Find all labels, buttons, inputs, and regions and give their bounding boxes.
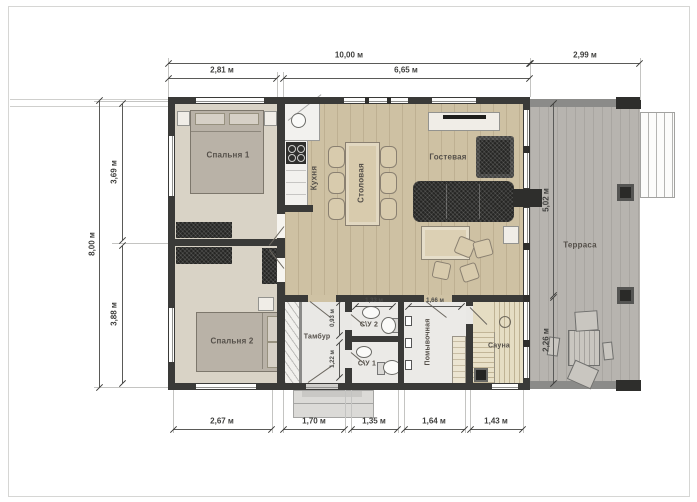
dim-line-top-terrace [530, 63, 640, 64]
dim-top-terrace: 2,99 м [573, 51, 597, 60]
room-label-sauna: Сауна [488, 343, 510, 350]
room-label-terrace: Терраса [563, 241, 597, 250]
stove [286, 142, 306, 164]
site-line [10, 99, 168, 100]
room-label-living: Гостевая [429, 153, 466, 162]
floor-closet [285, 302, 299, 383]
window-bedroom1 [196, 98, 264, 103]
pillow [195, 113, 225, 125]
dim-line-top-bedroom [168, 78, 277, 79]
dim-line-bottom-1 [173, 429, 272, 430]
terrace-steps [640, 112, 675, 198]
nightstand [177, 111, 190, 126]
room-label-wc2: С\У 2 [360, 322, 378, 329]
door-vestibule [308, 295, 336, 302]
dim-terrace-height: 5,02 м [542, 188, 551, 212]
kitchen-end-wall [283, 205, 313, 212]
dim-line-top-total [168, 63, 530, 64]
room-label-wc1: С\У 1 [358, 361, 376, 368]
dim-top-bedroom: 2,81 м [210, 66, 234, 75]
room-label-vestibule: Тамбур [304, 334, 331, 341]
shower-fitting [405, 338, 412, 348]
sauna-stove [474, 368, 488, 382]
burner [297, 154, 305, 162]
dim-line-left-total [99, 101, 100, 387]
window-living [432, 98, 476, 103]
dining-chair [328, 146, 345, 168]
dim-line-bottom-5 [470, 429, 523, 430]
terrace-chair [574, 310, 598, 332]
wall-bedroom-divider [168, 239, 285, 246]
armchair [476, 136, 514, 178]
entry-door [306, 384, 338, 389]
room-label-bedroom1: Спальня 1 [206, 151, 249, 160]
dim-bottom-2: 1,70 м [302, 417, 326, 426]
sink [356, 346, 372, 358]
burner [288, 145, 296, 153]
dim-left-top: 3,69 м [110, 160, 119, 184]
nightstand [258, 297, 274, 311]
room-label-washroom: Помывочная [425, 319, 432, 366]
window-sauna [492, 384, 518, 389]
burner [288, 154, 296, 162]
dim-bottom-5: 1,43 м [484, 417, 508, 426]
dim-wc2-depth: 0,93 м [330, 309, 336, 327]
dining-chair [380, 198, 397, 220]
dining-chair [328, 172, 345, 194]
wall-closet-thin [299, 302, 302, 383]
window-bedroom2-left [169, 308, 174, 362]
kitchen-sink [291, 113, 306, 128]
burner [297, 145, 305, 153]
wardrobe [176, 247, 232, 264]
dim-line-terrace-lower [553, 298, 554, 383]
dim-line-wc2-depth [339, 303, 340, 335]
dining-chair [328, 198, 345, 220]
terrace-bench [602, 342, 614, 361]
washroom-bench [452, 336, 466, 385]
terrace-post [617, 287, 634, 304]
terrace-door [513, 189, 542, 207]
sink [362, 306, 380, 319]
shower-fitting [405, 360, 412, 370]
dim-line-wc1-depth [339, 343, 340, 377]
room-label-kitchen: Кухня [310, 166, 319, 190]
tv-screen [443, 115, 486, 119]
dim-left-total: 8,00 м [88, 232, 97, 256]
window-dining [344, 98, 408, 103]
wall-inner-vertical [277, 104, 285, 390]
dining-chair [380, 172, 397, 194]
site-line [10, 106, 168, 107]
window-bedroom2-bottom [196, 384, 256, 389]
terrace-table [568, 330, 600, 366]
sauna-bucket [499, 316, 511, 328]
dim-line-top-living [283, 78, 530, 79]
dim-line-wc2-width [355, 306, 393, 307]
dim-washroom-width: 1,66 м [426, 298, 444, 304]
room-label-dining: Столовая [357, 163, 366, 203]
wall-wc-divider [352, 336, 398, 342]
entry-porch [293, 390, 374, 418]
dim-line-left-bottom [122, 246, 123, 383]
dim-line-bottom-2 [283, 429, 345, 430]
lounge-chair [431, 260, 451, 280]
floor-plan-sheet: 10,00 м 2,99 м 2,81 м 6,65 м 8,00 м 3,69… [0, 0, 697, 502]
room-label-bedroom2: Спальня 2 [210, 337, 253, 346]
dim-top-total: 10,00 м [335, 51, 363, 60]
dim-left-bottom: 3,88 м [110, 302, 119, 326]
shower-fitting [405, 316, 412, 326]
sofa [413, 181, 514, 222]
dining-chair [380, 146, 397, 168]
side-table [503, 226, 519, 244]
dim-terrace-lower: 2,26 м [542, 328, 551, 352]
dim-wc2-width: 1,33 м [365, 298, 383, 304]
pillow [229, 113, 259, 125]
dim-line-left-top [122, 104, 123, 240]
toilet [381, 317, 396, 334]
window-bedroom1-left [169, 136, 174, 196]
wardrobe [176, 222, 232, 238]
dim-wc1-depth: 1,22 м [330, 350, 336, 368]
dim-top-living: 6,65 м [394, 66, 418, 75]
dim-line-bottom-4 [404, 429, 465, 430]
dim-bottom-3: 1,35 м [362, 417, 386, 426]
glazing-terrace-lower [524, 208, 529, 378]
terrace-post [617, 184, 634, 201]
dim-line-terrace-height [553, 104, 554, 295]
nightstand [264, 111, 277, 126]
dim-bottom-4: 1,64 м [422, 417, 446, 426]
dim-line-washroom-width [408, 306, 462, 307]
dim-line-bottom-3 [351, 429, 398, 430]
dim-bottom-1: 2,67 м [210, 417, 234, 426]
